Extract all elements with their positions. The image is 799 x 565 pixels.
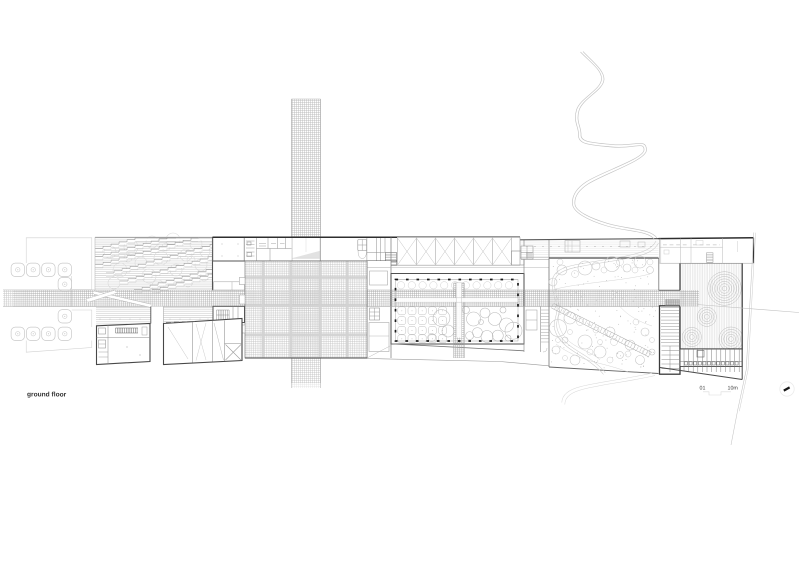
svg-text:ground floor: ground floor bbox=[27, 391, 67, 398]
svg-text:10m: 10m bbox=[727, 386, 738, 392]
svg-text:01: 01 bbox=[699, 386, 705, 392]
